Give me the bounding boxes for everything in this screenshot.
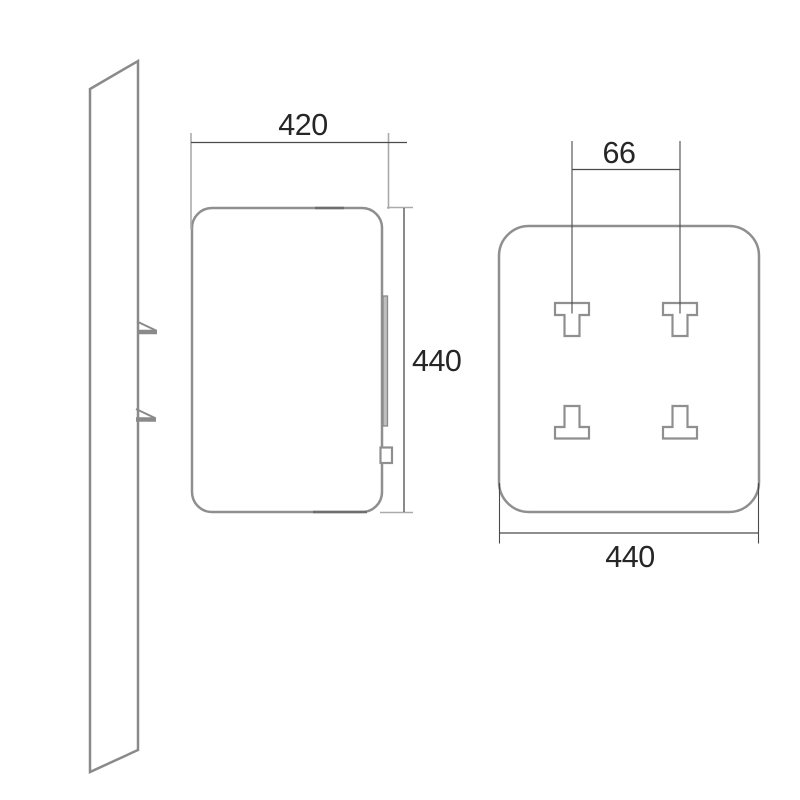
mirror-front-view [192,208,392,512]
dim-label-front-height: 440 [412,344,461,378]
mounting-rail [383,296,388,426]
dim-label-bracket-spacing: 66 [603,136,636,170]
technical-drawing-canvas: 420 440 66 440 [0,0,800,800]
mirror-body-outline [192,208,382,512]
dim-front-height: 440 [380,208,461,513]
dim-label-back-width: 440 [605,540,654,574]
cable-tab [381,448,393,464]
mirror-back-view [499,226,759,512]
wall-hatch-panel [90,61,138,772]
drawing-svg: 420 440 66 440 [0,0,800,800]
dim-label-front-width: 420 [278,108,327,142]
back-panel-outline [499,226,759,512]
wall-hook-top [137,322,157,333]
wall-section [90,61,157,772]
